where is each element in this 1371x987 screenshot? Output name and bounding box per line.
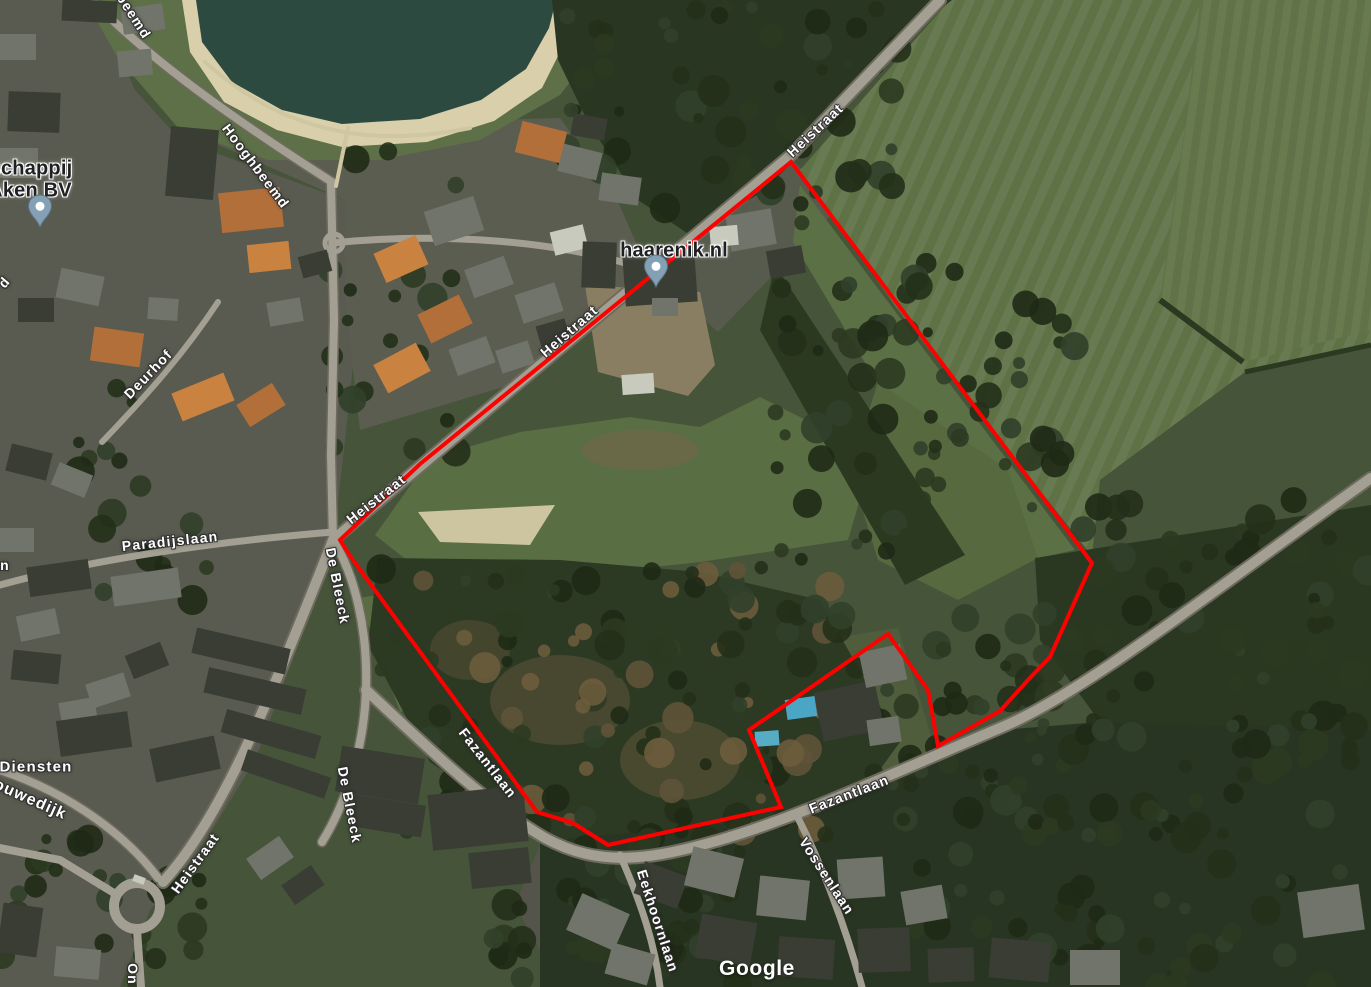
pin-icon <box>645 255 668 287</box>
map-pin[interactable] <box>27 194 53 233</box>
map-canvas[interactable]: beemdHooghbeemdDeurhofParadijslaanDe Ble… <box>0 0 1371 987</box>
satellite-terrain <box>0 0 1371 987</box>
pin-icon <box>29 195 52 227</box>
map-pin[interactable] <box>643 254 669 293</box>
google-watermark: Google <box>719 957 795 981</box>
